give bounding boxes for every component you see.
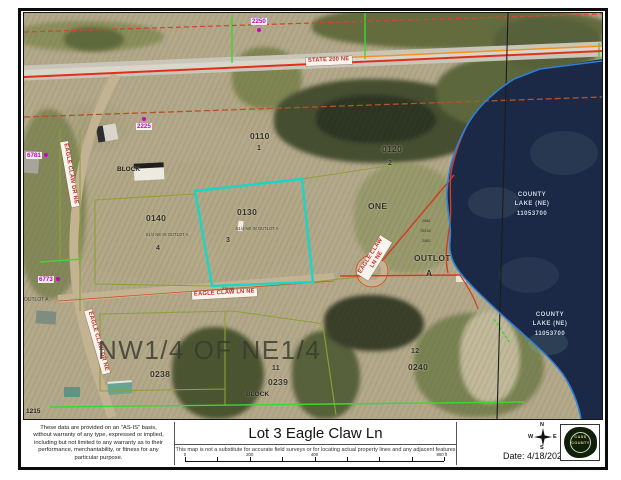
parcel-number-0110: 0110 (250, 131, 270, 141)
address-point (142, 117, 146, 121)
survey-number: 2082 (422, 239, 430, 243)
county-logo: CASS COUNTY (560, 424, 600, 461)
compass-w: W (528, 434, 533, 440)
subject-parcel-outline (195, 179, 313, 286)
address-point (257, 28, 261, 32)
scale-label: 200 (246, 452, 253, 457)
county-logo-text: COUNTY (564, 441, 597, 445)
parcel-number-0239: 0239 (268, 377, 288, 387)
lot-number-12: 12 (411, 348, 419, 355)
outlot-label: OUTLOT (414, 253, 451, 263)
quarter-section-overlay: NW1/4 OF NE1/4 (98, 335, 321, 366)
county-logo-shape: CASS COUNTY (564, 427, 597, 458)
lot-lines (60, 129, 400, 415)
outlot-letter: A (426, 268, 432, 278)
address-label: 1215 (26, 408, 40, 415)
section-dashed-line (24, 14, 602, 32)
address-label: 2250 (251, 18, 267, 25)
county-logo-text: CASS (564, 435, 597, 439)
address-label: 2225 (136, 123, 152, 130)
parcel-number-0120: 0120 (382, 144, 402, 154)
lake-name-label: COUNTY LAKE (NE) 11053700 (502, 191, 562, 219)
map-title: Lot 3 Eagle Claw Ln (175, 422, 456, 444)
disclaimer-text: These data are provided on an "AS-IS" ba… (23, 422, 175, 465)
address-label: 6781 (26, 152, 42, 159)
map-footer: These data are provided on an "AS-IS" ba… (23, 422, 603, 465)
lake-water (447, 59, 602, 419)
survey-number: 278.98 (222, 287, 234, 291)
parcel-number-0130: 0130 (237, 207, 257, 217)
scale-label: 400 (311, 452, 318, 457)
parcel-number-0240: 0240 (408, 362, 428, 372)
lot-number-3: 3 (226, 237, 230, 244)
lot-number-2: 2 (388, 160, 392, 167)
survey-number: 2082 (422, 219, 430, 223)
address-point (56, 277, 60, 281)
parcel-desc-0140: S1/4 NE IN OUTLOT A (122, 232, 212, 237)
aerial-map: STATE 200 NE EAGLE CLAW DR NE EAGLE CLAW… (23, 12, 603, 420)
lot-number-11: 11 (272, 365, 280, 372)
lake-name-label: COUNTY LAKE (NE) 11053700 (520, 311, 580, 339)
scale-label: 0 (184, 452, 186, 457)
block-label-lower: BLOCK (246, 391, 269, 398)
title-block: Lot 3 Eagle Claw Ln This map is not a su… (175, 422, 457, 465)
block-label-upper: BLOCK (117, 166, 140, 173)
parcel-number-0238: 0238 (150, 369, 170, 379)
scale-block: This map is not a substitute for accurat… (175, 444, 456, 465)
compass-e: E (553, 434, 557, 440)
compass-star-icon (534, 428, 552, 446)
map-sheet: STATE 200 NE EAGLE CLAW DR NE EAGLE CLAW… (18, 8, 608, 470)
parcel-number-0140: 0140 (146, 213, 166, 223)
survey-number: 70216 (420, 229, 431, 233)
outlot-a-small-label: OUTLOT A (24, 297, 49, 303)
lot-number-1: 1 (257, 145, 261, 152)
parcel-desc-0130: N1/4 NE IN OUTLOT A (212, 226, 302, 231)
address-point (44, 153, 48, 157)
scale-label: 800 ft (436, 452, 447, 457)
plat-label-one: ONE (368, 201, 387, 211)
scale-bar: 0 200 400 800 ft (185, 457, 444, 462)
lot-number-4: 4 (156, 245, 160, 252)
map-date: Date: 4/18/2024 (503, 451, 567, 461)
address-label: 6773 (38, 276, 54, 283)
footer-right: N W E S Date: 4/18/2024 CASS COUNTY (457, 422, 603, 465)
